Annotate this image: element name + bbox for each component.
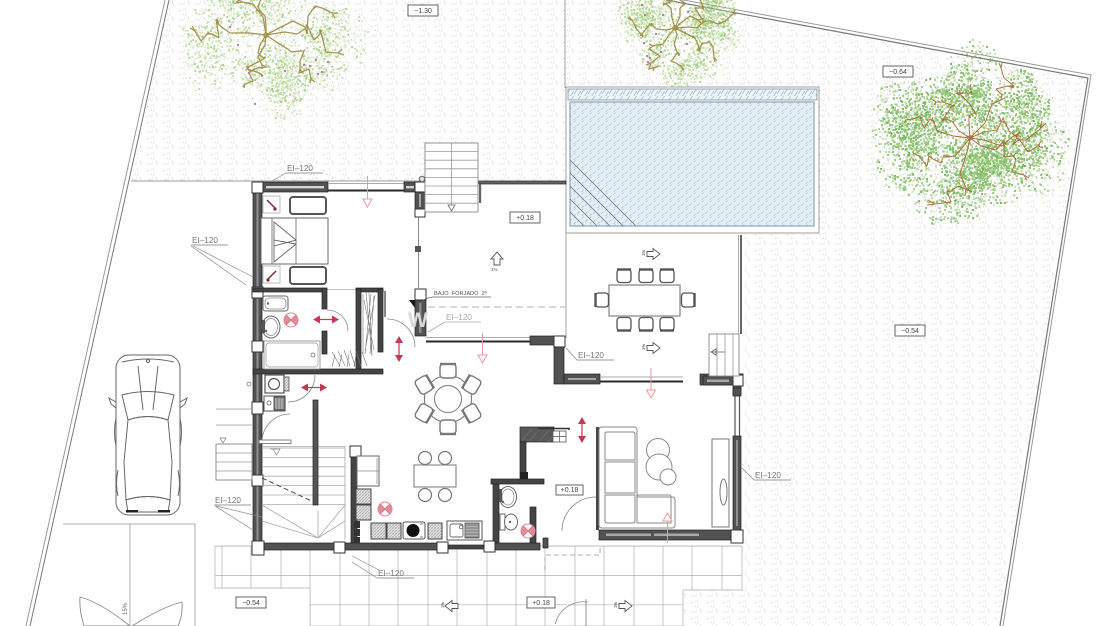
svg-text:+0.18: +0.18 (532, 600, 550, 607)
svg-text:1%: 1% (440, 602, 445, 608)
svg-text:−1.30: −1.30 (414, 8, 432, 15)
svg-text:1%: 1% (641, 250, 646, 256)
svg-text:1%: 1% (641, 344, 646, 350)
svg-text:+0.18: +0.18 (561, 487, 579, 494)
svg-text:EI–120: EI–120 (755, 471, 781, 480)
svg-text:EI–120: EI–120 (378, 569, 404, 578)
svg-text:−0.54: −0.54 (242, 600, 260, 607)
svg-text:−0.54: −0.54 (901, 328, 919, 335)
svg-text:15%: 15% (123, 602, 129, 615)
svg-text:BAJO FORJADO 2ª: BAJO FORJADO 2ª (434, 290, 488, 297)
svg-text:EI–120: EI–120 (287, 164, 313, 173)
svg-text:W: W (408, 309, 428, 332)
svg-text:+0.18: +0.18 (516, 215, 534, 222)
svg-text:1%: 1% (491, 267, 498, 272)
svg-text:−0.64: −0.64 (889, 69, 907, 76)
svg-text:EI–120: EI–120 (215, 496, 241, 505)
svg-text:EI–120: EI–120 (192, 236, 218, 245)
svg-text:EI–120: EI–120 (578, 351, 604, 360)
svg-text:1%: 1% (613, 602, 618, 608)
svg-text:EI–120: EI–120 (446, 313, 472, 322)
